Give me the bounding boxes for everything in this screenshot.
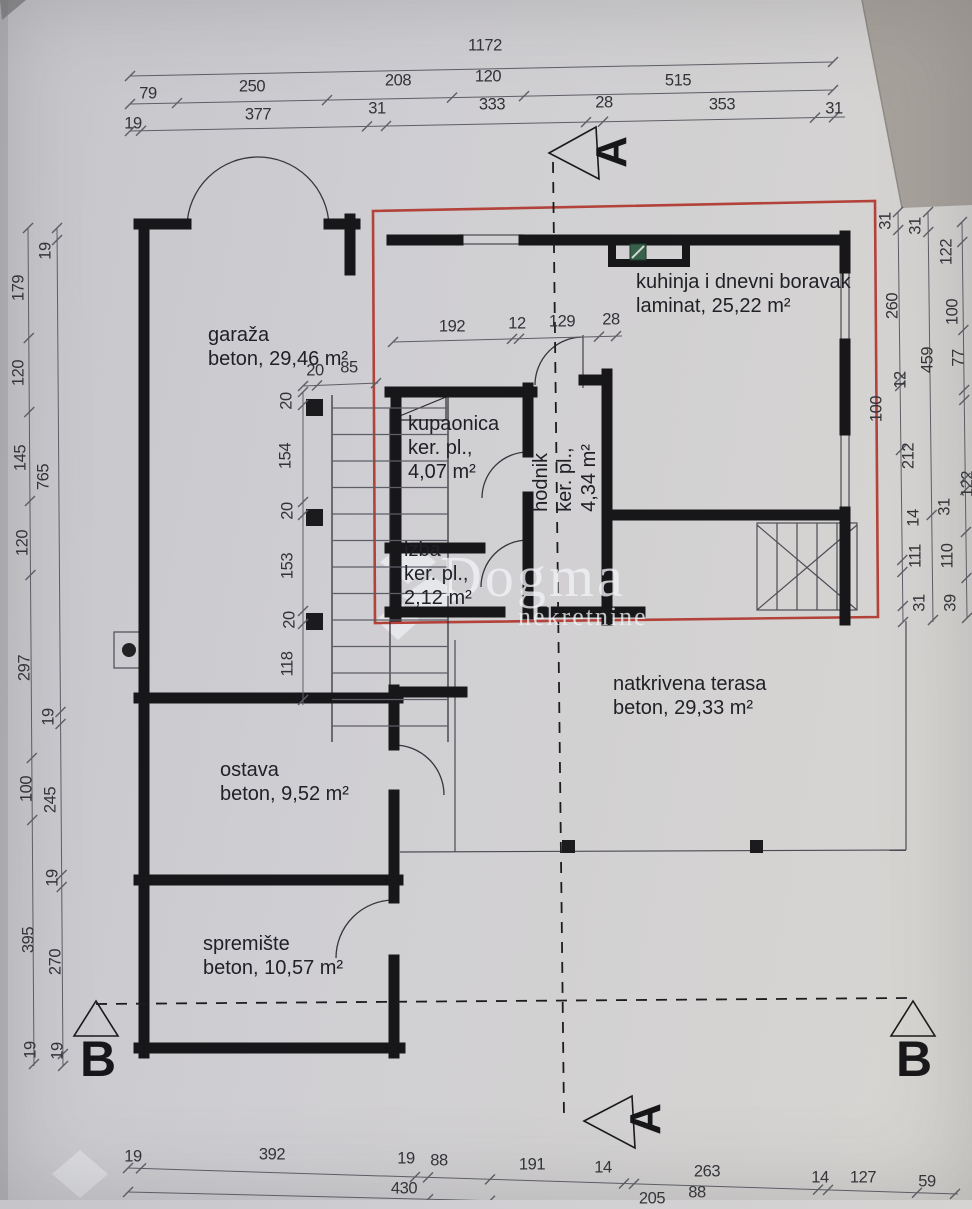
dim-label: 250	[239, 78, 265, 97]
room-label-line: izba	[404, 538, 472, 562]
dim-label: 263	[694, 1163, 720, 1182]
dim-label: 100	[868, 396, 887, 422]
dim-label: 19	[40, 708, 59, 726]
room-label-line: kuhinja i dnevni boravak	[636, 270, 851, 294]
dim-label: 14	[594, 1159, 612, 1178]
dim-label: 31	[368, 100, 386, 119]
dim-label: 392	[259, 1146, 285, 1165]
dim-label: 20	[278, 392, 297, 410]
section-label-b-right: B	[896, 1030, 932, 1088]
dim-label: 377	[245, 106, 271, 125]
dim-label: 20	[281, 611, 300, 629]
dim-label: 145	[12, 445, 31, 471]
dim-label: 120	[14, 530, 33, 556]
section-label-a-bottom: A	[621, 1103, 671, 1135]
dim-label: 297	[16, 655, 35, 681]
section-label-a-top: A	[587, 136, 637, 168]
dim-label: 208	[385, 72, 411, 91]
room-label-line: 2,12 m²	[404, 586, 472, 610]
room-label-line: garaža	[208, 323, 348, 347]
floor-plan-sheet: Dogma nekretnine A A B B garažabeton, 29…	[0, 0, 972, 1200]
dim-label: 270	[47, 949, 66, 975]
room-label-spremiste: spremištebeton, 10,57 m²	[203, 932, 343, 980]
dim-label: 153	[279, 553, 298, 579]
dim-label: 430	[391, 1180, 417, 1199]
dim-label: 14	[905, 509, 924, 527]
dim-label: 31	[877, 212, 896, 230]
dim-label: 19	[37, 242, 56, 260]
room-label-line: 4,07 m²	[408, 460, 499, 484]
dim-label: 191	[519, 1156, 545, 1175]
room-label-ostava: ostavabeton, 9,52 m²	[220, 758, 349, 806]
dim-label: 154	[277, 443, 296, 469]
room-label-line: 4,34 m²	[577, 444, 601, 512]
dim-label: 515	[665, 72, 691, 91]
dim-label: 118	[279, 651, 298, 676]
dim-label: 20	[279, 502, 298, 520]
dim-label: 260	[884, 293, 903, 319]
watermark-subtitle: nekretnine	[518, 602, 648, 632]
labels-layer: Dogma nekretnine A A B B garažabeton, 29…	[0, 0, 972, 1200]
room-label-line: beton, 29,46 m²	[208, 347, 348, 371]
dim-label: 100	[944, 299, 963, 325]
dim-label: 122	[959, 471, 972, 497]
dim-label: 333	[479, 96, 505, 115]
room-label-line: natkrivena terasa	[613, 672, 766, 696]
dim-label: 353	[709, 96, 735, 115]
room-label-izba: izbaker. pl.,2,12 m²	[404, 538, 472, 610]
dim-label: 19	[44, 869, 63, 887]
dim-label: 31	[911, 594, 930, 612]
dim-label: 59	[918, 1173, 936, 1192]
dim-label: 88	[430, 1152, 448, 1171]
dim-label: 192	[439, 318, 465, 337]
room-label-terasa: natkrivena terasabeton, 29,33 m²	[613, 672, 766, 720]
section-label-b-left: B	[80, 1030, 116, 1088]
dim-label: 14	[811, 1169, 829, 1188]
room-label-hodnik: hodnikker. pl.,4,34 m²	[529, 444, 601, 512]
dim-label: 85	[340, 359, 358, 378]
dim-label: 19	[124, 115, 142, 134]
dim-label: 31	[907, 217, 926, 235]
dim-label: 28	[602, 311, 620, 330]
dim-label: 79	[139, 85, 157, 104]
dim-label: 12	[508, 315, 526, 334]
dim-label: 120	[10, 360, 29, 386]
dim-label: 19	[397, 1150, 415, 1169]
room-label-line: ker. pl.,	[408, 436, 499, 460]
dim-label: 28	[595, 94, 613, 113]
dim-label: 205	[639, 1190, 665, 1209]
dim-label: 179	[10, 275, 29, 301]
room-label-line: ker. pl.,	[553, 444, 577, 512]
room-label-line: ker. pl.,	[404, 562, 472, 586]
dim-label: 129	[549, 313, 575, 332]
room-label-line: hodnik	[529, 444, 553, 512]
dim-label: 77	[950, 349, 969, 367]
dim-label: 1172	[468, 37, 502, 56]
room-label-line: ostava	[220, 758, 349, 782]
room-label-line: beton, 29,33 m²	[613, 696, 766, 720]
dim-label: 395	[20, 927, 39, 953]
dim-label: 127	[850, 1169, 876, 1188]
dim-label: 245	[42, 787, 61, 813]
room-label-line: laminat, 25,22 m²	[636, 294, 851, 318]
dim-label: 110	[939, 543, 958, 568]
dim-label: 765	[35, 464, 54, 490]
room-label-kuhinja: kuhinja i dnevni boravaklaminat, 25,22 m…	[636, 270, 851, 318]
room-label-line: kupaonica	[408, 412, 499, 436]
dim-label: 111	[907, 544, 926, 568]
room-label-line: beton, 9,52 m²	[220, 782, 349, 806]
room-label-line: spremište	[203, 932, 343, 956]
dim-label: 19	[49, 1042, 68, 1060]
dim-label: 19	[22, 1041, 41, 1059]
dim-label: 120	[475, 68, 501, 87]
dim-label: 459	[919, 347, 938, 373]
dim-label: 100	[18, 776, 37, 802]
dim-label: 19	[124, 1148, 142, 1167]
room-label-line: beton, 10,57 m²	[203, 956, 343, 980]
room-label-garaza: garažabeton, 29,46 m²	[208, 323, 348, 371]
dim-label: 122	[938, 239, 957, 265]
room-label-kupaonica: kupaonicaker. pl.,4,07 m²	[408, 412, 499, 484]
dim-label: 31	[936, 498, 955, 516]
dim-label: 20	[306, 362, 324, 381]
dim-label: 31	[825, 100, 843, 119]
dim-label: 39	[942, 594, 961, 612]
dim-label: 212	[900, 443, 919, 469]
dim-label: 12	[892, 371, 911, 389]
